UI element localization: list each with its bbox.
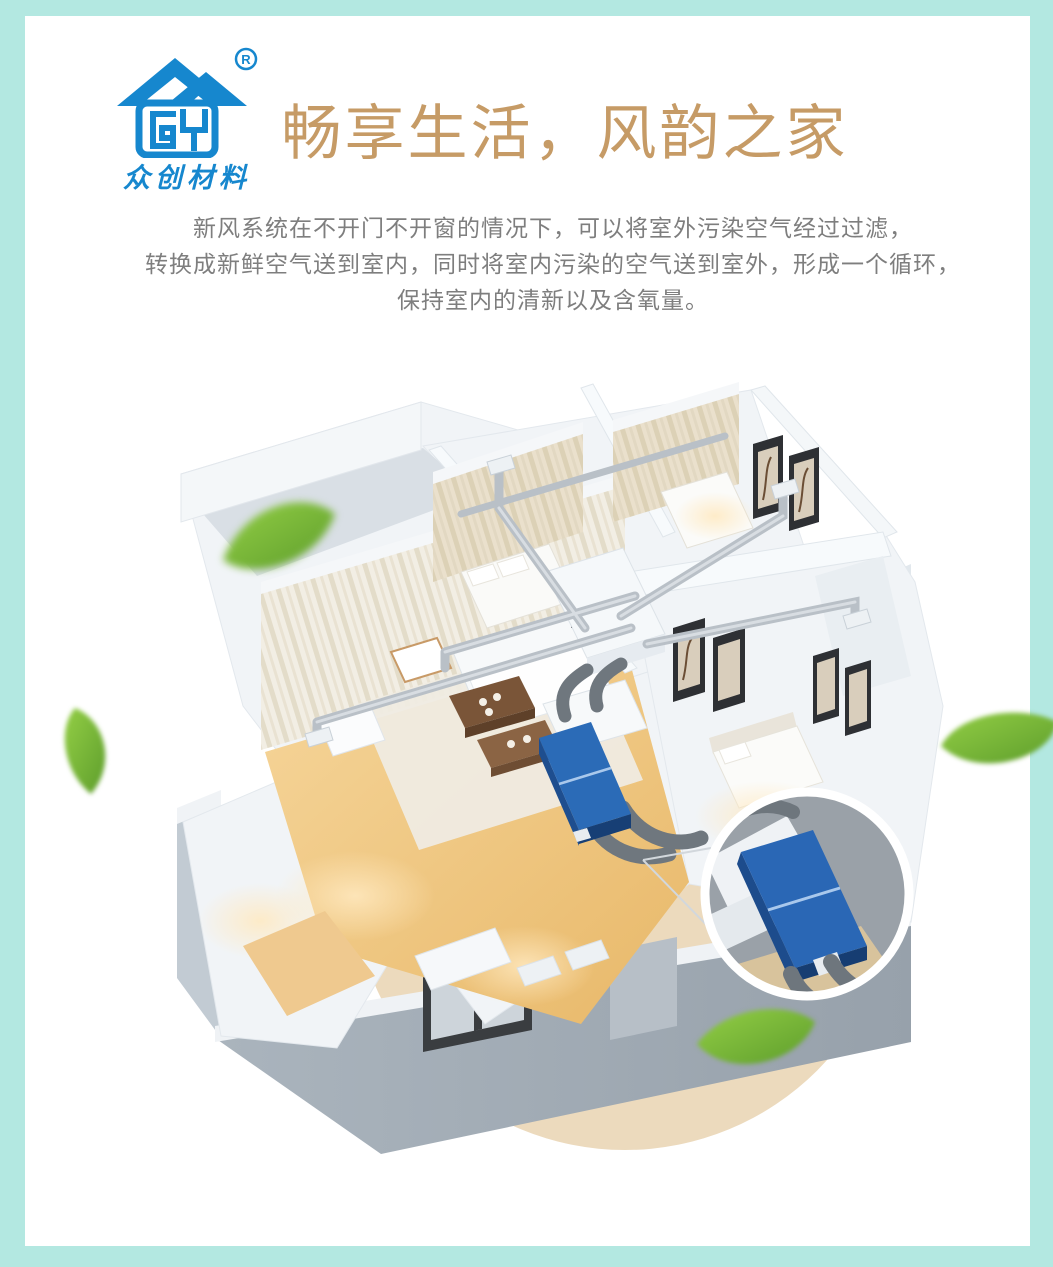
page-title: 畅享生活，风韵之家 (225, 98, 905, 170)
description-paragraph: 新风系统在不开门不开窗的情况下，可以将室外污染空气经过过滤， 转换成新鲜空气送到… (85, 210, 1021, 318)
apartment-building (177, 382, 943, 1154)
description-line-3: 保持室内的清新以及含氧量。 (397, 287, 709, 313)
description-line-1: 新风系统在不开门不开窗的情况下，可以将室外污染空气经过过滤， (193, 215, 913, 241)
leaf-icon (941, 713, 1053, 764)
poster-page: R 众创材料 畅享生活，风韵之家 新风系统在不开门不开窗的情况下，可以将室外污染… (0, 0, 1053, 1267)
apartment-illustration (25, 346, 1053, 1267)
description-line-2: 转换成新鲜空气送到室内，同时将室内污染的空气送到室外，形成一个循环， (145, 251, 961, 277)
registered-mark-letter: R (241, 52, 251, 67)
leaf-icon (65, 708, 106, 794)
poster-content-area: R 众创材料 畅享生活，风韵之家 新风系统在不开门不开窗的情况下，可以将室外污染… (25, 16, 1030, 1246)
